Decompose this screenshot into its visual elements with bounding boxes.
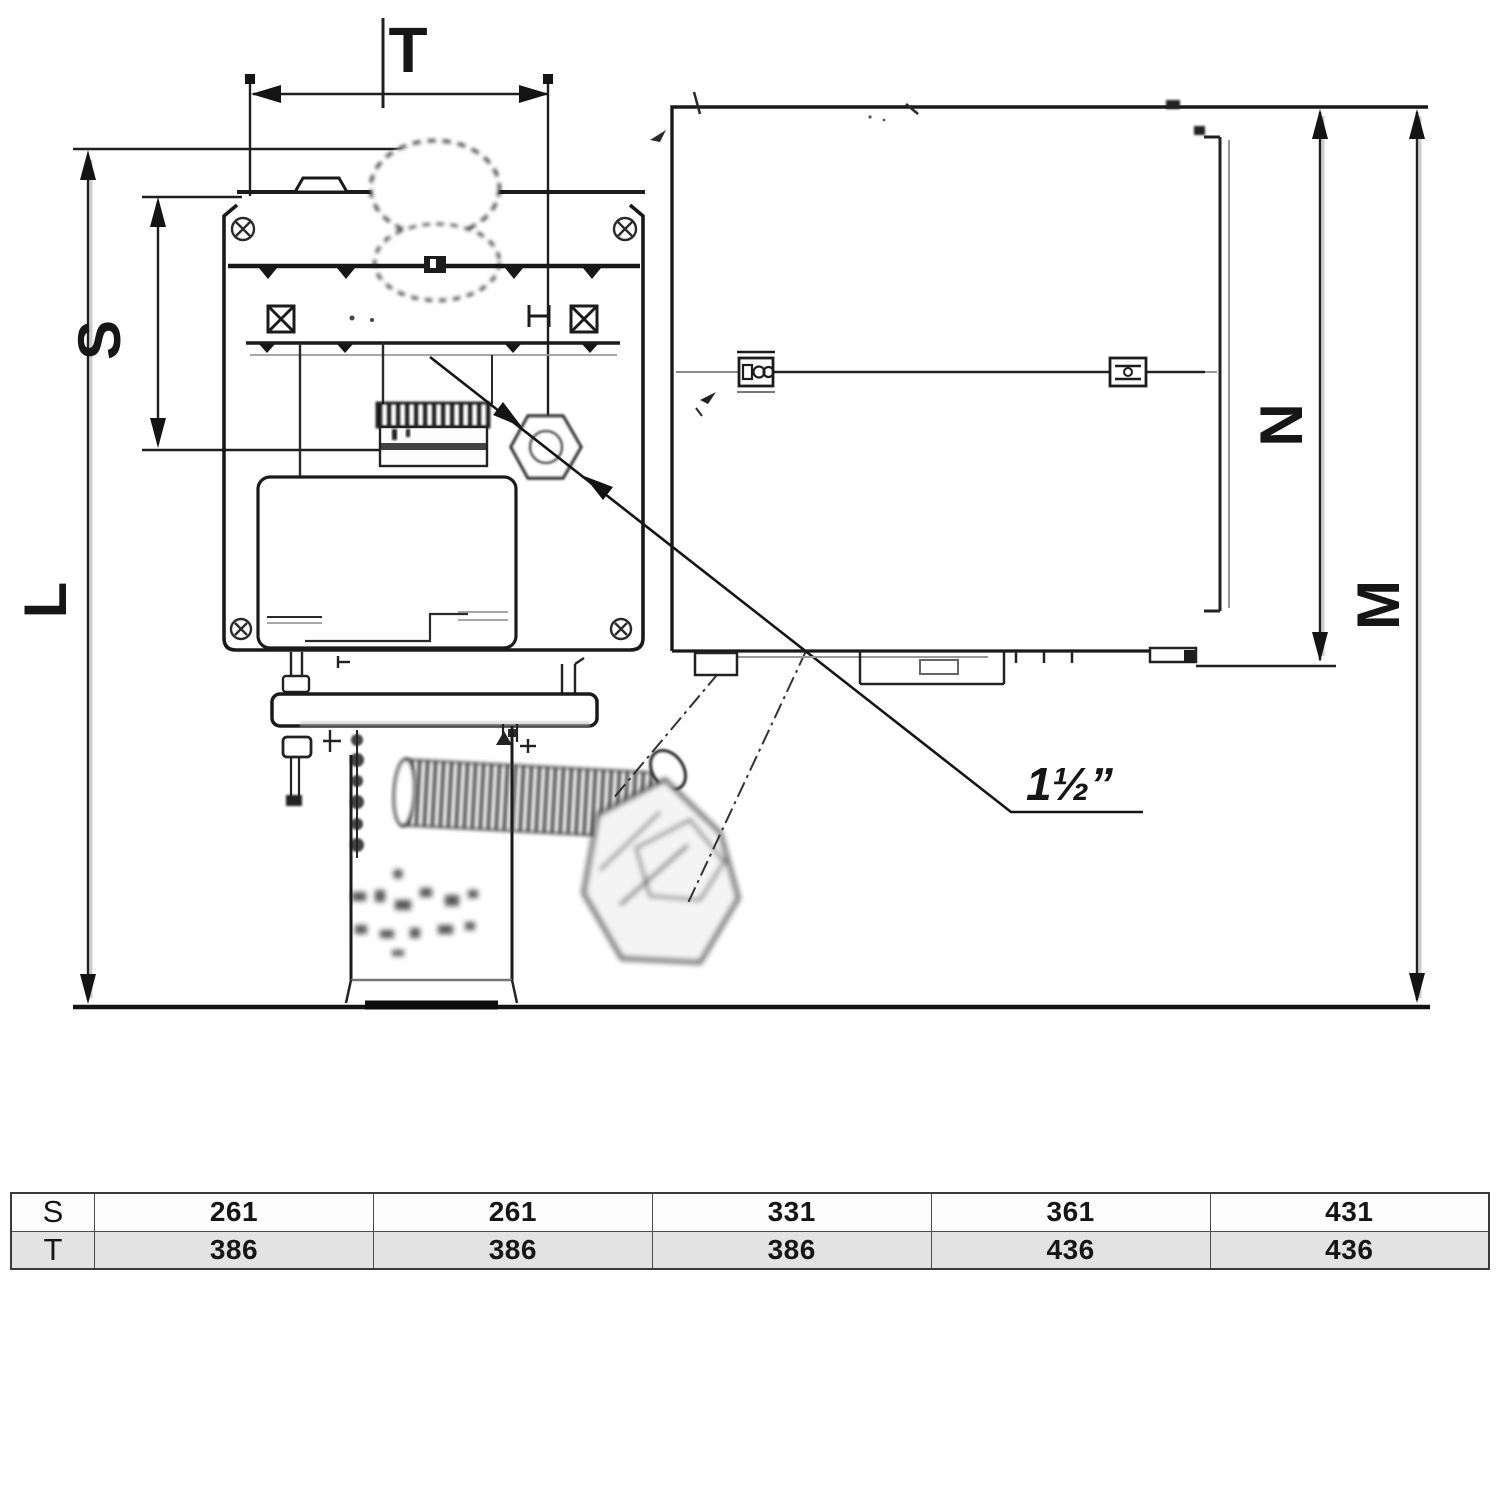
- dimension-T-label: T: [388, 14, 427, 86]
- ground-baseline: [73, 1005, 1430, 1007]
- burner-side-view: [650, 92, 1428, 684]
- gas-valve-block: [377, 403, 489, 466]
- rail-connector-left: [737, 352, 775, 392]
- T-value-5: 436: [1210, 1231, 1489, 1269]
- rail-connector-right: [1110, 358, 1146, 386]
- S-value-2: 261: [373, 1193, 652, 1231]
- flange-bolts: [283, 652, 584, 694]
- burner-front-view: [224, 141, 806, 1003]
- T-value-1: 386: [95, 1231, 374, 1269]
- S-value-1: 261: [95, 1193, 374, 1231]
- slide-rail: [676, 352, 1217, 416]
- table-row-S: S 261 261 331 361 431: [11, 1193, 1489, 1231]
- S-value-4: 361: [931, 1193, 1210, 1231]
- dimension-N: [1196, 109, 1336, 666]
- technical-drawing: L S T: [0, 0, 1500, 1500]
- row-header-T: T: [11, 1231, 95, 1269]
- T-value-4: 436: [931, 1231, 1210, 1269]
- transformer-circles: [371, 141, 499, 300]
- dimension-S: [142, 197, 384, 450]
- side-view-feet: [695, 648, 1196, 684]
- scan-marks: [650, 92, 1180, 142]
- dimension-M-label: M: [1345, 580, 1412, 630]
- dimension-S-label: S: [66, 320, 133, 360]
- S-value-5: 431: [1210, 1193, 1489, 1231]
- table-row-T: T 386 386 386 436 436: [11, 1231, 1489, 1269]
- side-panel-edge: [1194, 126, 1229, 611]
- dimension-N-label: N: [1248, 403, 1315, 446]
- control-box: [258, 477, 516, 648]
- T-value-3: 386: [652, 1231, 931, 1269]
- T-value-2: 386: [373, 1231, 652, 1269]
- connection-size-label: 1½”: [1026, 758, 1113, 810]
- dimension-table: S 261 261 331 361 431 T 386 386 386 436 …: [10, 1192, 1490, 1270]
- dimension-M: [1409, 109, 1425, 1003]
- row-header-S: S: [11, 1193, 95, 1231]
- dimension-L-label: L: [12, 582, 79, 619]
- burner-dimension-sheet: L S T: [0, 0, 1500, 1500]
- tube-label-smudge: [352, 869, 478, 956]
- S-value-3: 331: [652, 1193, 931, 1231]
